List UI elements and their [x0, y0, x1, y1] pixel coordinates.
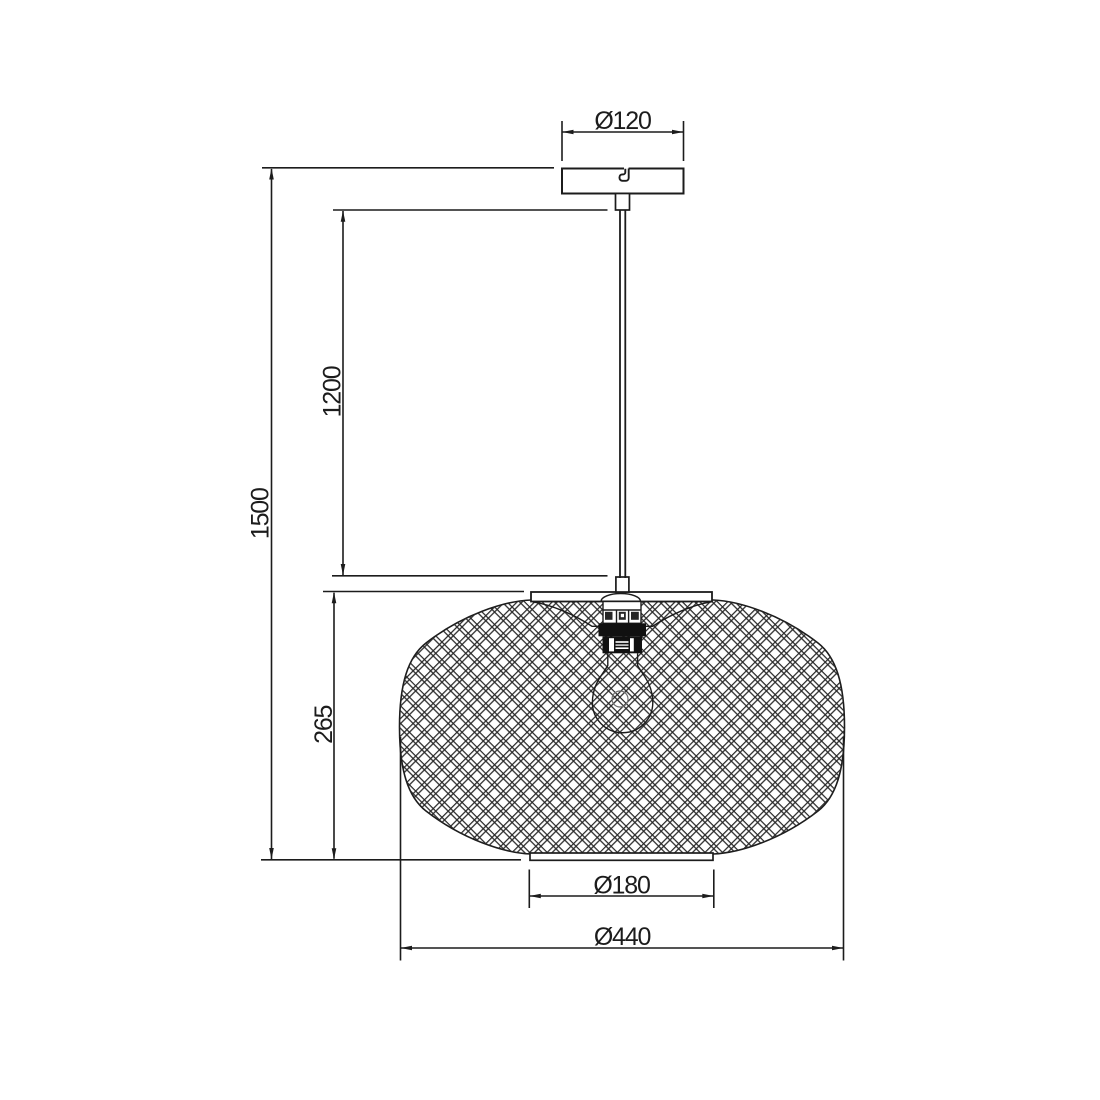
svg-text:Ø120: Ø120 — [594, 107, 651, 135]
svg-text:Ø180: Ø180 — [593, 872, 650, 900]
svg-text:1500: 1500 — [246, 488, 274, 539]
svg-text:265: 265 — [310, 705, 338, 743]
svg-text:1200: 1200 — [319, 366, 347, 417]
svg-text:Ø440: Ø440 — [594, 923, 651, 951]
